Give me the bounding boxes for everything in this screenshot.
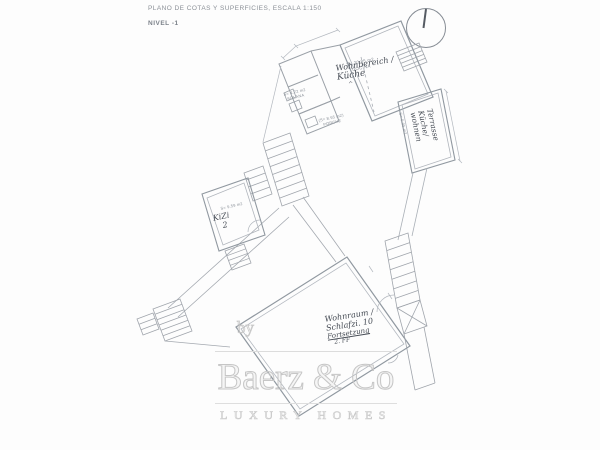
- corridor-lines: [165, 197, 345, 347]
- watermark-brand: Baerz & Co: [213, 356, 399, 399]
- north-circle-icon: [407, 9, 446, 48]
- watermark-by: by: [237, 318, 254, 338]
- watermark-rule-bottom: [215, 403, 397, 404]
- note-terrace: Terrasse Küche/ wohnen: [408, 108, 440, 145]
- central-stairs: [244, 133, 309, 206]
- watermark-rule-top: [215, 351, 397, 352]
- lower-left-stairs: [137, 299, 192, 341]
- scanned-floor-plan-page: PLANO DE COTAS Y SUPERFICIES, ESCALA 1:1…: [0, 0, 600, 450]
- plan-walls: [137, 9, 462, 417]
- left-room-walls: [202, 178, 265, 270]
- watermark-tagline: LUXURY HOMES: [213, 408, 399, 423]
- note-left-room: KiZi 2: [212, 211, 232, 232]
